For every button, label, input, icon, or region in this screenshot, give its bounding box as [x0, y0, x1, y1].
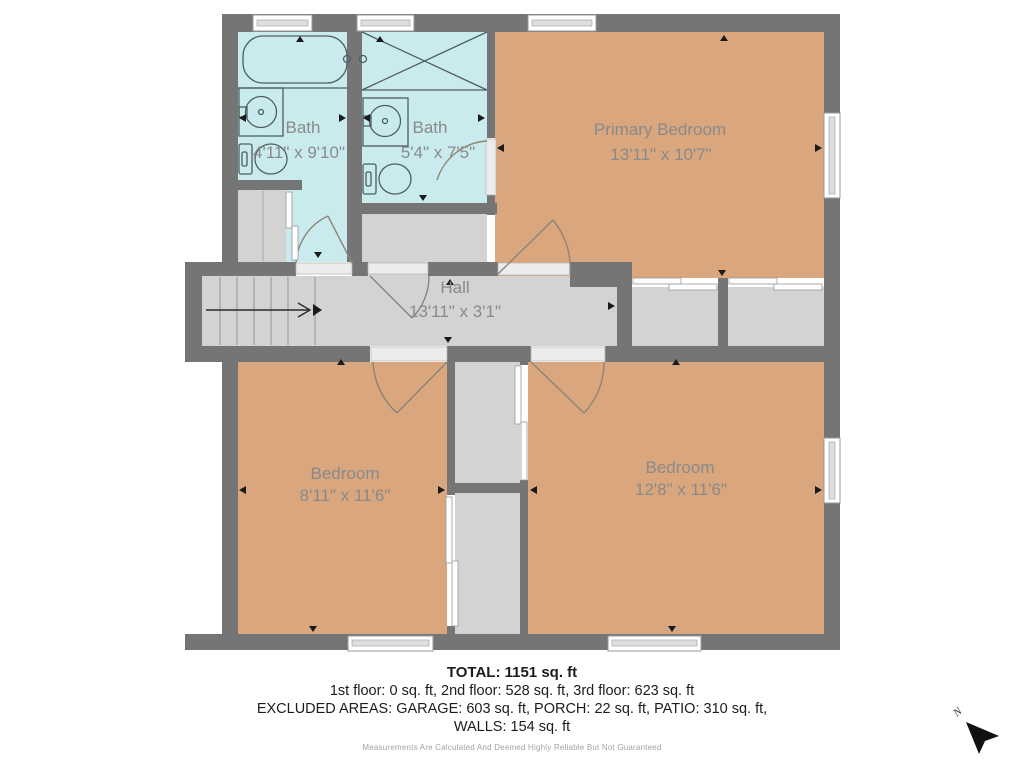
room-label-bath2: Bath — [413, 118, 448, 137]
room-bedroom-right-floor — [528, 362, 824, 636]
window-bedroom-right-bottom — [608, 636, 701, 651]
room-dims-bedroom-left: 8'11" x 11'6" — [300, 486, 391, 505]
primary-closet-a-slider — [633, 278, 681, 284]
excluded-areas-text: EXCLUDED AREAS: GARAGE: 603 sq. ft, PORC… — [0, 700, 1024, 718]
window-bedroom-right-side — [824, 438, 840, 503]
bedroom-right-door-threshold — [531, 347, 605, 361]
room-dims-hall: 13'11" x 3'1" — [409, 302, 501, 321]
bath2-door-panel — [486, 139, 496, 195]
room-dims-primary-bedroom: 13'11" x 10'7" — [610, 145, 711, 164]
room-dims-bath1: 4'11" x 9'10" — [253, 143, 345, 162]
room-label-primary-bedroom: Primary Bedroom — [594, 120, 726, 139]
primary-door-threshold — [498, 263, 570, 275]
walls-area-text: WALLS: 154 sq. ft — [0, 718, 1024, 736]
window-bath2-top — [357, 15, 414, 31]
room-label-bath1: Bath — [286, 118, 321, 137]
primary-closet-b-floor — [728, 287, 824, 347]
window-bedroom-left-bottom — [348, 636, 433, 651]
disclaimer-text: Measurements Are Calculated And Deemed H… — [0, 743, 1024, 752]
footer-summary: TOTAL: 1151 sq. ft 1st floor: 0 sq. ft, … — [0, 664, 1024, 752]
mid-closets-floor — [455, 362, 520, 636]
window-primary-top — [528, 15, 596, 31]
mid-closet-top-slider — [515, 366, 521, 424]
room-label-hall: Hall — [440, 278, 469, 297]
primary-closet-a-floor — [632, 287, 718, 347]
floor-areas-text: 1st floor: 0 sq. ft, 2nd floor: 528 sq. … — [0, 682, 1024, 700]
primary-closet-b-slider — [729, 278, 777, 284]
stairs-closet-slider — [286, 192, 292, 228]
stairs-closet-floor — [238, 190, 286, 262]
mid-closet-bottom-slider — [446, 497, 452, 563]
window-bath1-top — [253, 15, 312, 31]
room-label-bedroom-left: Bedroom — [311, 464, 380, 483]
window-primary-right — [824, 113, 840, 198]
bedroom-left-door-threshold — [371, 347, 447, 361]
bath1-door-threshold — [296, 263, 352, 274]
room-dims-bedroom-right: 12'8" x 11'6" — [635, 480, 727, 499]
room-label-bedroom-right: Bedroom — [646, 458, 715, 477]
total-area-text: TOTAL: 1151 sq. ft — [0, 664, 1024, 682]
room-dims-bath2: 5'4" x 7'5" — [401, 143, 475, 162]
hall-closet-door-threshold — [368, 263, 428, 274]
floor-plan: Bath 4'11" x 9'10" Bath 5'4" x 7'5" Prim… — [0, 0, 1024, 768]
